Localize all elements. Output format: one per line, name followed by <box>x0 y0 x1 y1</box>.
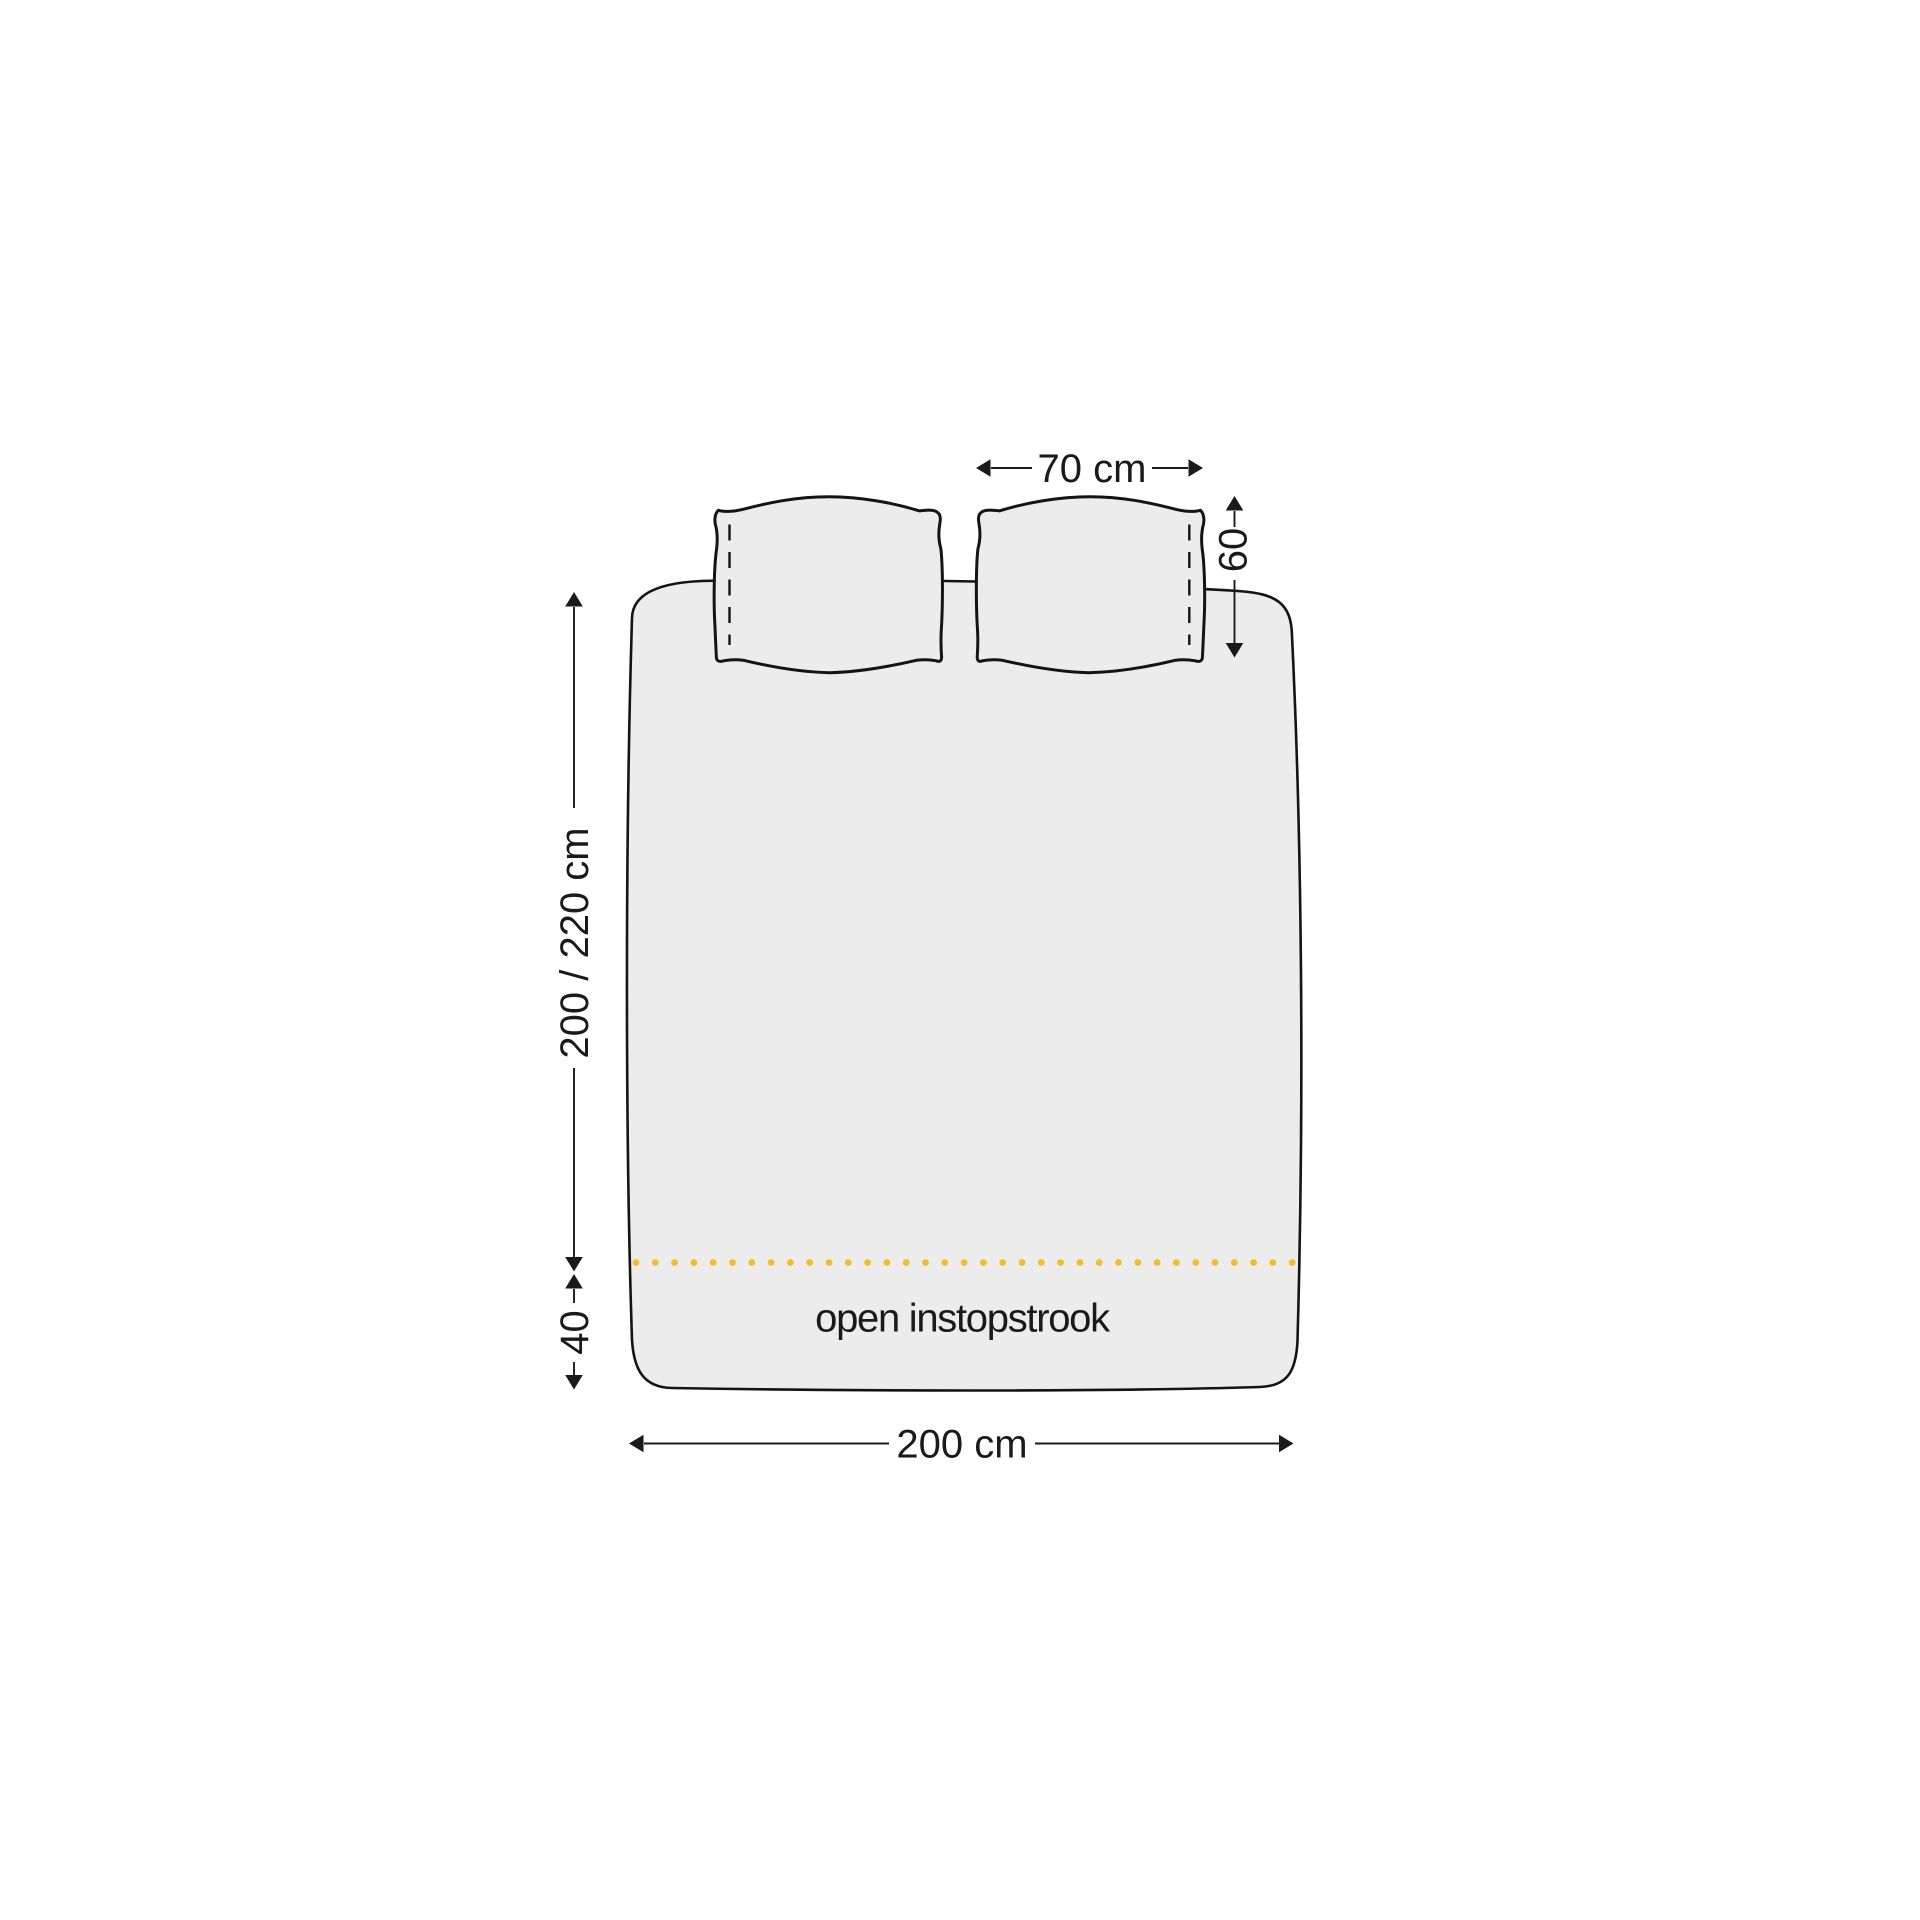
svg-text:200 cm: 200 cm <box>896 1423 1027 1467</box>
svg-text:60: 60 <box>1212 528 1256 573</box>
svg-text:40: 40 <box>553 1310 597 1355</box>
svg-text:200 / 220 cm: 200 / 220 cm <box>553 827 597 1058</box>
svg-text:open instopstrook: open instopstrook <box>815 1297 1111 1341</box>
svg-text:70 cm: 70 cm <box>1038 447 1147 491</box>
